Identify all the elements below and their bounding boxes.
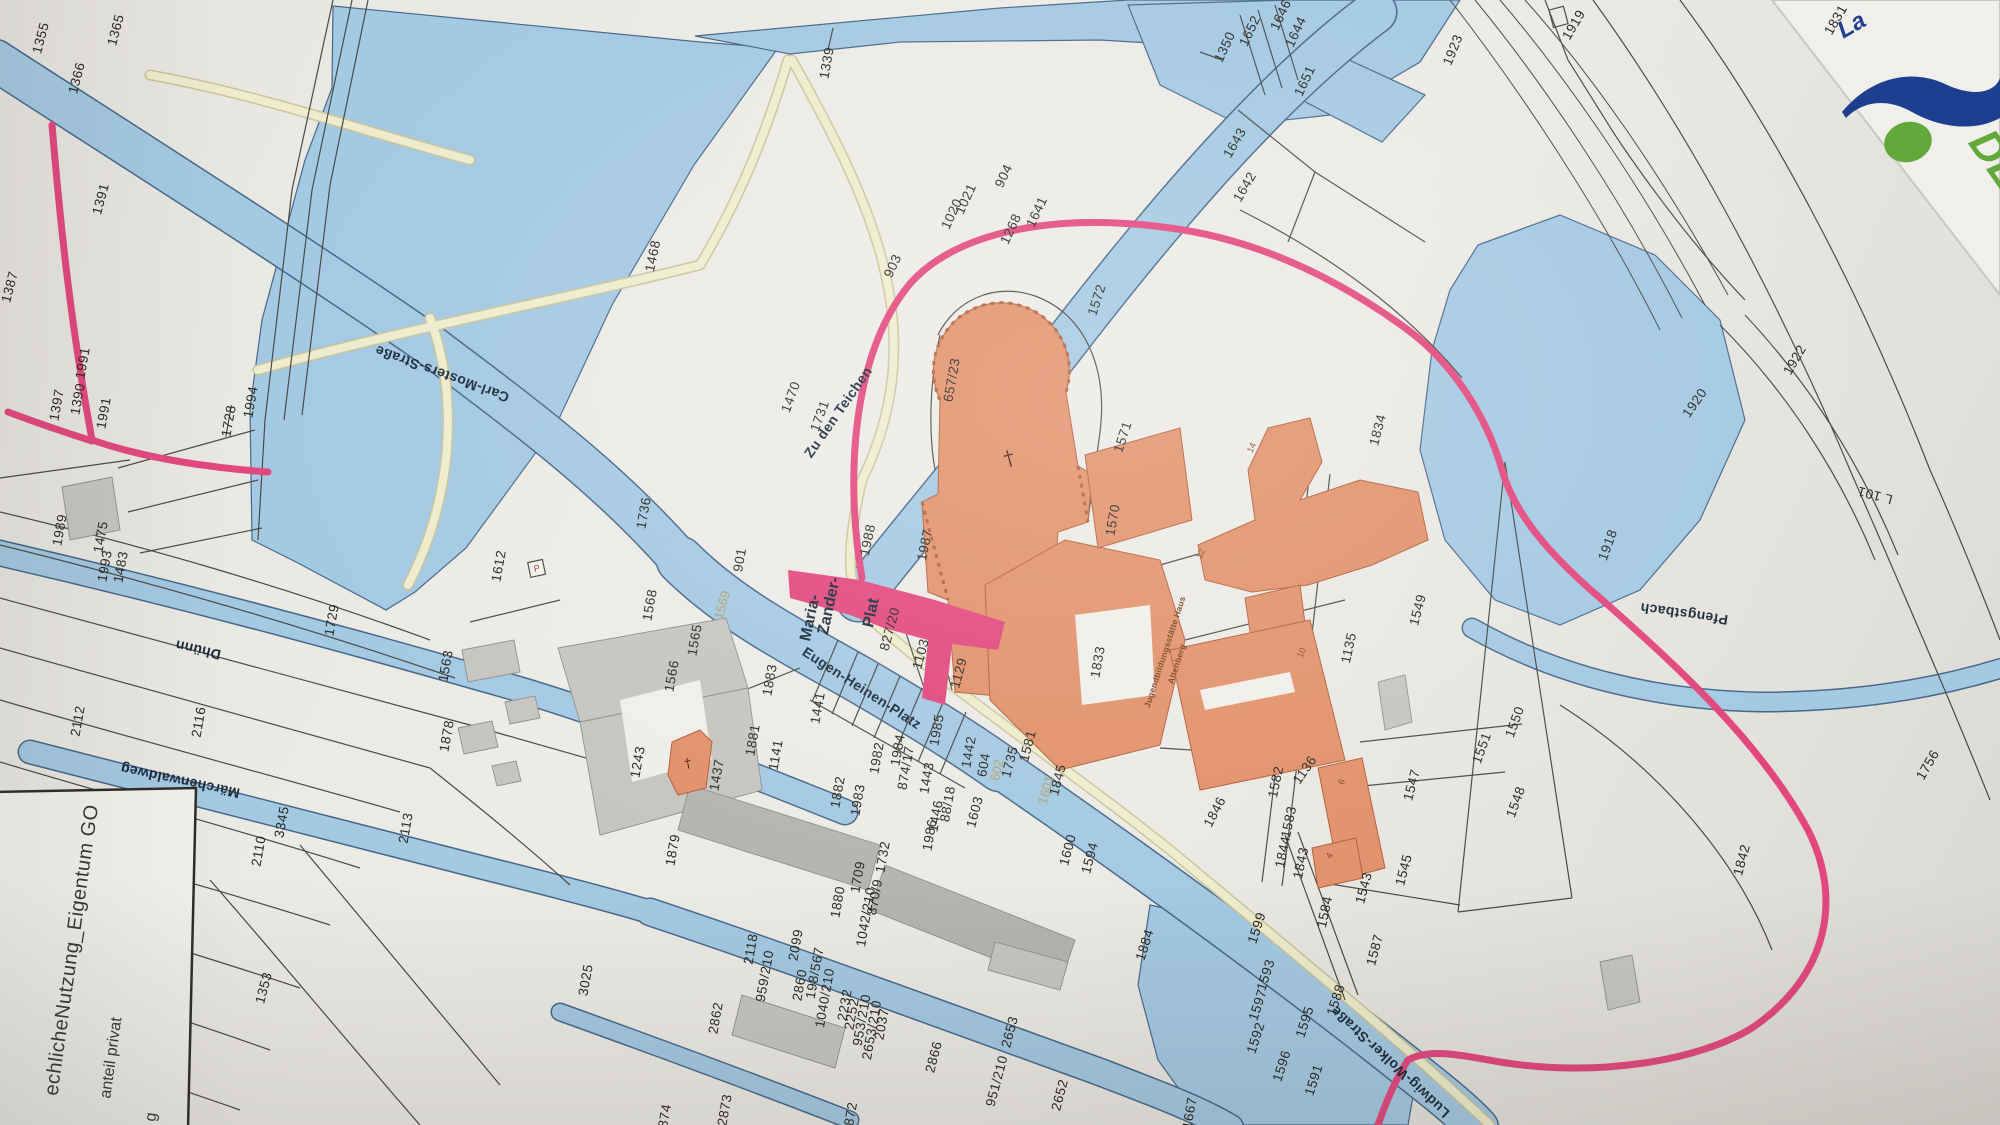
parcel-label: 1596 [1271,1049,1294,1084]
parcel-label: 1883 [760,663,779,697]
parcel-label: 657/23 [941,357,962,403]
parcel-label: 1550 [1503,705,1527,740]
parcel-label: 1583 [1279,805,1299,839]
parcel-label: 1355 [30,21,52,56]
parcel-label: 1547 [1401,768,1423,803]
parcel-label: 1365 [105,13,127,48]
parcel-label: 1243 [628,745,647,779]
parcel-label: L 101 [1856,484,1894,507]
parcel-label: 1612 [489,549,508,583]
parcel-label: 1844 [1273,835,1293,869]
parcel-label: 872 [842,1101,860,1125]
logo-text: DE [1960,122,2000,198]
parcel-label: 1756 [1914,748,1942,783]
map-photo: 1355136613651391138713971390199119911994… [0,0,2000,1125]
parcel-label: 1470 [779,380,803,415]
parcel-label: 2037 [872,1007,891,1041]
parcel-label: 1918 [1596,528,1620,563]
parcel-label: 1443 [917,761,936,795]
parcel-label: 1591 [1303,1063,1326,1098]
parcel-label: 2116 [190,706,209,739]
parcel-label: 1545 [1393,853,1415,888]
church-cross-icon: † [1002,447,1017,469]
parcel-label: 1985 [927,713,946,747]
street-label: Pfengstbach [1639,601,1729,627]
parcel-label: 1549 [1407,593,1429,628]
parcel-label: 1846 [1201,795,1228,830]
street-label: Dhünn [174,638,222,662]
parcel-label: 1566 [662,659,681,693]
parcel-label: 1570 [1103,503,1122,537]
parcel-label: 2113 [397,812,416,845]
parcel-label: 1387 [0,270,21,305]
house-number: 10 [1296,647,1309,660]
parcel-label: 903 [882,252,905,280]
parcel-label: 1268 [998,212,1024,247]
parcel-label: 1021 [953,182,979,217]
parcel-label: 1642 [1231,170,1259,205]
parcel-label: 1468 [643,239,663,273]
parcel-label: 2099 [786,928,805,962]
parcel-label: 1879 [663,833,682,867]
parcel-label: 1735 [999,745,1021,780]
parcel-label: 1881 [743,723,762,757]
parcel-label: 1736 [634,496,653,530]
parcel-label: 1597 [1247,988,1270,1023]
parcel-label: 1989 [50,513,69,547]
parcel-label: 827/20 [878,606,903,652]
parcel-label: 1880 [828,885,847,919]
map-labels-layer: 1355136613651391138713971390199119911994… [0,0,2000,1125]
parcel-label: 2866 [923,1040,945,1075]
parcel-label: 1600 [1057,833,1079,868]
parcel-label: 1644 [1283,15,1309,50]
parcel-label: 1543 [1353,871,1375,906]
parcel-label: 1994 [241,385,260,419]
parcel-label: 1599 [1246,911,1269,946]
parcel-label: 1845 [1047,763,1069,798]
parcel-label: 1982 [867,741,886,775]
house-number: 4 [1325,852,1335,860]
street-label: Carl-Mosters-Straße [373,343,511,405]
parcel-label: 1667 [1180,1096,1199,1125]
parcel-label: 1988 [858,523,878,557]
parcel-label: 88/18 [938,785,958,823]
parcel-label: 901 [731,547,749,573]
parcel-label: 874 [656,1103,674,1125]
parcel-label: 1551 [1470,731,1494,766]
parcel-label: 1878 [437,719,456,753]
parcel-label: 2862 [706,1001,725,1035]
house-number: P [533,564,541,574]
parcel-label: 1594 [1079,841,1101,876]
parcel-label: 1923 [1441,33,1466,68]
parcel-label: 1652 [1237,14,1263,49]
parcel-label: 1391 [90,182,112,217]
parcel-label: 1565 [685,623,704,657]
legend-text: echlicheNutzung_Eigentum GO [41,803,102,1097]
parcel-label: 1135 [1339,631,1359,664]
parcel-label: 1920 [1680,386,1710,420]
parcel-label: 1729 [322,603,341,637]
parcel-label: 1568 [640,588,659,622]
parcel-label: 1983 [848,783,867,817]
parcel-label: 1603 [964,795,986,830]
parcel-label: 1129 [948,656,969,690]
parcel-label: 1350 [1212,30,1238,65]
parcel-label: 1732 [873,840,892,874]
parcel-label: 1643 [1221,126,1249,161]
parcel-label: 2652 [1049,1078,1071,1113]
parcel-label: 2118 [742,933,761,966]
parcel-label: 1987 [915,528,935,562]
parcel-label: 1641 [1024,195,1050,230]
parcel-label: 1843 [1291,846,1311,880]
parcel-label: 2653 [999,1015,1021,1050]
parcel-label: 1592 [1245,1021,1268,1056]
parcel-label: 1042/210 [854,886,878,948]
parcel-label: 959/210 [754,949,777,1003]
parcel-label: 1834 [1367,413,1389,448]
parcel-label: 3345 [272,805,291,839]
parcel-label: 1651 [1292,64,1318,99]
parcel-label: 1437 [707,758,726,792]
parcel-label: 1572 [1086,283,1109,318]
street-label: Zander- [816,576,844,637]
parcel-label: 1991 [94,396,113,430]
parcel-label: 1581 [1017,729,1039,764]
parcel-label: 1582 [1266,765,1286,799]
church-cross-icon: † [684,757,693,771]
parcel-label: 1842 [1731,843,1753,878]
street-label: Plat [861,597,883,629]
parcel-label: 1991 [73,346,92,380]
parcel-label: 1728 [219,404,238,438]
parcel-label: 1441 [808,691,827,725]
parcel-label: 1587 [1364,933,1386,968]
parcel-label: 1919 [1560,8,1588,43]
parcel-label: 1483 [111,550,130,584]
parcel-label: 904 [993,162,1016,190]
parcel-label: 2110 [250,835,269,868]
parcel-label: 1571 [1112,420,1135,455]
parcel-label: 1595 [1294,1005,1317,1040]
parcel-label: 1922 [1781,343,1809,378]
house-number: 6 [1337,778,1347,786]
house-number: 14 [1246,442,1259,455]
legend-text: anteil privat [98,1016,126,1099]
parcel-label: 1103 [910,637,931,671]
parcel-label: 1136 [1290,753,1319,786]
parcel-label: 1584 [1315,895,1335,929]
parcel-label: 3025 [576,963,595,997]
parcel-label: 1141 [767,739,786,772]
parcel-label: 1882 [828,775,847,809]
parcel-label: 1390 [68,382,87,416]
parcel-label: 1339 [817,46,836,80]
parcel-label: 1569 [712,589,732,620]
parcel-label: 1833 [1088,645,1107,679]
parcel-label: 2873 [715,1093,734,1125]
parcel-label: 1563 [436,649,455,683]
parcel-label: 1366 [66,61,88,96]
street-label: Märchenwaldweg [119,761,241,800]
legend-text: g [143,1111,160,1122]
parcel-label: 1397 [47,388,66,422]
parcel-label: 1548 [1504,785,1528,820]
parcel-label: 951/210 [984,1054,1011,1108]
street-label: Ludwig-Wolker-Straße [1328,1003,1452,1120]
parcel-label: 2112 [69,705,88,738]
parcel-label: 1353 [253,971,275,1006]
house-number: 12 [1195,548,1208,561]
parcel-label: 1884 [1134,928,1157,963]
